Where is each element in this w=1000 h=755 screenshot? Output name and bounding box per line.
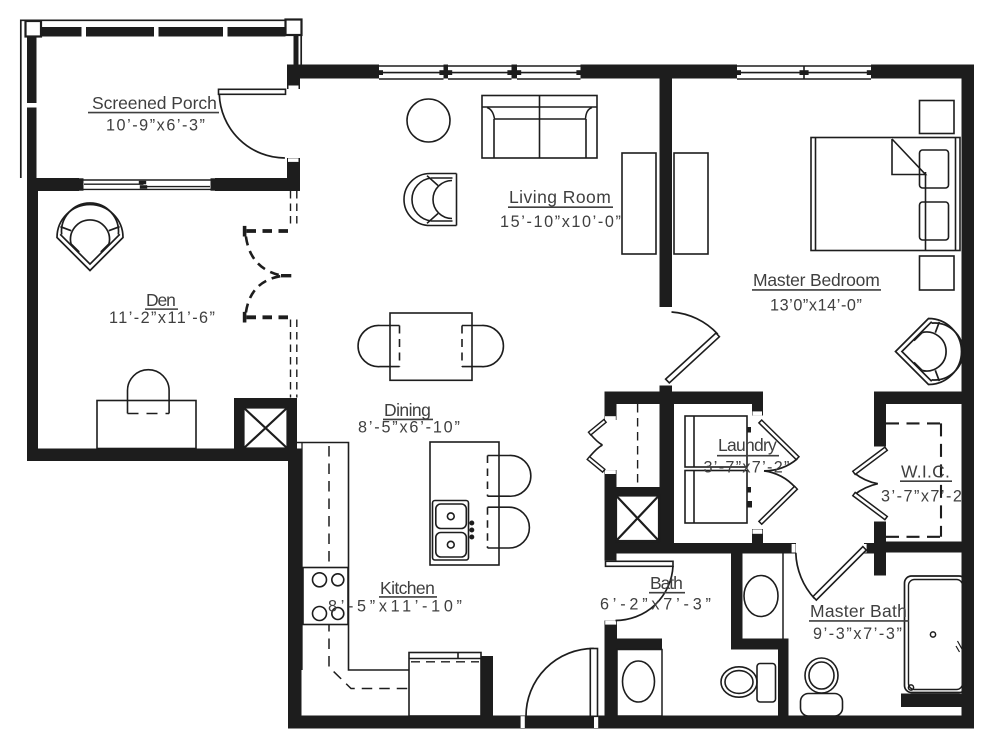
svg-text:Kitchen: Kitchen [380, 578, 436, 598]
svg-text:W.I.C.: W.I.C. [901, 462, 951, 482]
svg-text:Den: Den [146, 290, 177, 310]
svg-text:Living Room: Living Room [509, 187, 612, 207]
svg-text:Screened Porch: Screened Porch [92, 93, 218, 113]
svg-text:3’-7”x7’-2”: 3’-7”x7’-2” [704, 459, 791, 477]
svg-text:11’-2”x11’-6”: 11’-2”x11’-6” [109, 309, 216, 327]
svg-text:10’-9”x6’-3”: 10’-9”x6’-3” [106, 117, 206, 135]
svg-text:Master Bath: Master Bath [810, 601, 908, 621]
svg-text:13’0”x14’-0”: 13’0”x14’-0” [770, 297, 863, 315]
svg-text:6’-2”x7’-3”: 6’-2”x7’-3” [600, 596, 712, 614]
svg-text:Master Bedroom: Master Bedroom [753, 270, 881, 290]
svg-text:3’-7”x7’-2: 3’-7”x7’-2 [881, 488, 963, 506]
svg-text:15’-10”x10’-0”: 15’-10”x10’-0” [500, 213, 622, 231]
svg-text:Laundry: Laundry [718, 435, 778, 455]
svg-text:Dining: Dining [384, 400, 432, 420]
svg-text:8’-5”x6’-10”: 8’-5”x6’-10” [358, 419, 461, 437]
svg-text:9’-3”x7’-3”: 9’-3”x7’-3” [813, 625, 903, 643]
svg-text:Bath: Bath [650, 573, 684, 593]
